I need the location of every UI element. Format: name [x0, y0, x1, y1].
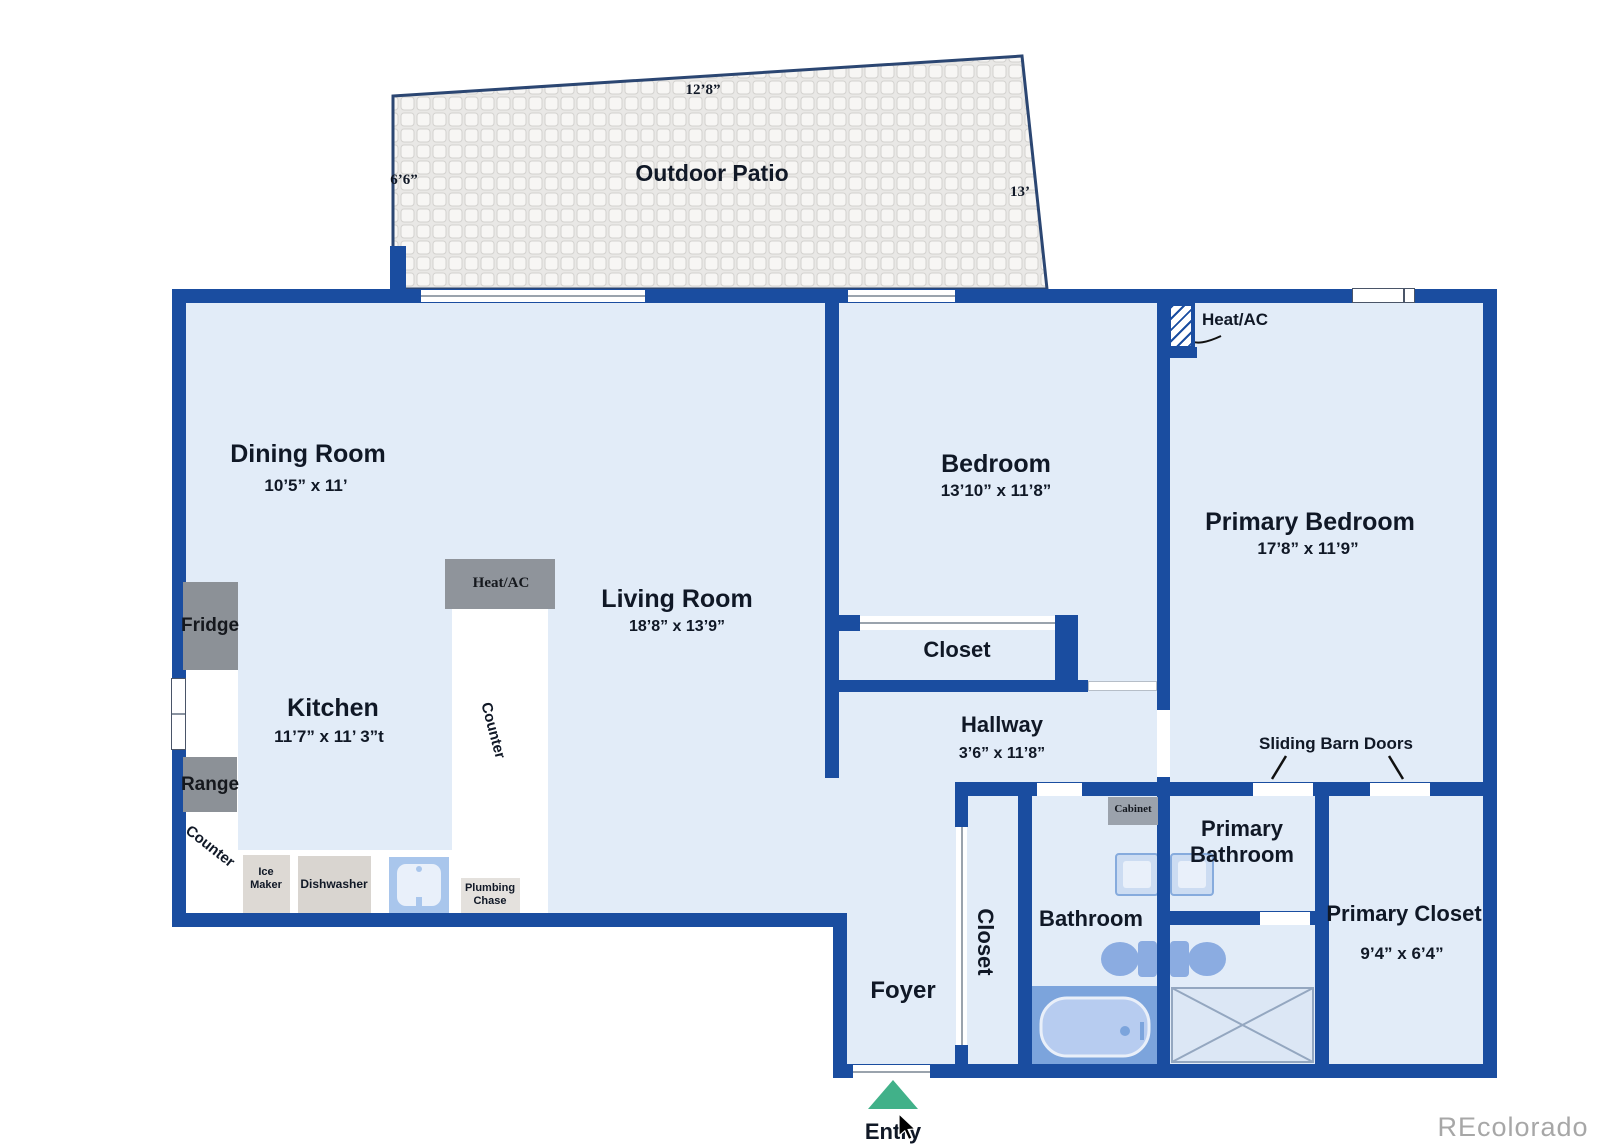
- dining-room-dims: 10’5” x 11’: [264, 476, 347, 496]
- range-label: Range: [181, 774, 239, 796]
- patio-dim-top: 12’8”: [686, 82, 721, 99]
- hallway-title: Hallway: [961, 712, 1043, 738]
- primary-bedroom-dims: 17’8” x 11’9”: [1257, 539, 1358, 559]
- ice-maker-label: IceMaker: [250, 866, 282, 892]
- plumbing-chase-label: PlumbingChase: [465, 882, 515, 908]
- wall-hallway-top: [839, 680, 1088, 692]
- heat-ac-unit: [1167, 302, 1195, 350]
- bedroom-dims: 13’10” x 11’8”: [941, 481, 1052, 501]
- barn-door-slash-left: [1272, 756, 1286, 779]
- wall-living-bedroom: [825, 289, 839, 778]
- foyer-title: Foyer: [870, 977, 935, 1005]
- bathroom-door: [1037, 783, 1082, 796]
- wall-foyer-left: [833, 913, 847, 1078]
- primary-bedroom-door: [1157, 710, 1170, 777]
- hallway-dims: 3’6” x 11’8”: [959, 745, 1045, 763]
- fixtures-layer: [0, 0, 1600, 1147]
- barn-door-slash-right: [1389, 756, 1403, 779]
- foyer-closet-title: Closet: [972, 908, 998, 975]
- living-room-dims: 18’8” x 13’9”: [629, 618, 725, 636]
- cabinet-label: Cabinet: [1114, 803, 1151, 816]
- patio-title: Outdoor Patio: [635, 160, 788, 187]
- primary-bathroom-title: PrimaryBathroom: [1190, 816, 1294, 868]
- patio-dim-right: 13’: [1010, 184, 1030, 201]
- entry-marker-icon: [868, 1080, 918, 1109]
- water-closet-door: [1260, 912, 1310, 925]
- bathroom-title: Bathroom: [1039, 906, 1143, 932]
- wall-closet-stub: [839, 615, 860, 631]
- primary-bedroom-title: Primary Bedroom: [1205, 508, 1415, 537]
- patio-door-bedroom: [848, 290, 955, 302]
- shower-x-icon: [1172, 988, 1313, 1062]
- wall-foyer-closet-right: [1018, 782, 1032, 1064]
- primary-closet-title: Primary Closet: [1326, 901, 1481, 927]
- bathtub-icon: [1032, 986, 1157, 1064]
- wall-bathrooms-shared: [1157, 782, 1170, 1064]
- heat-ac-bedroom-label: Heat/AC: [1202, 310, 1268, 330]
- foyer-closet-door: [956, 827, 967, 1045]
- wall-kitchen-bottom: [172, 913, 847, 927]
- bedroom-title: Bedroom: [941, 450, 1051, 479]
- bedroom-closet-title: Closet: [923, 637, 990, 663]
- wall-foyer-closet-stub-top: [955, 782, 968, 827]
- bathroom-sink-icon: [1116, 854, 1158, 895]
- entry-label: Entry: [865, 1119, 921, 1145]
- barn-door-opening-left: [1253, 783, 1313, 796]
- entry-door: [853, 1065, 930, 1078]
- heat-ac-kitchen-label: Heat/AC: [473, 575, 530, 592]
- primary-bedroom-window: [1352, 288, 1415, 303]
- kitchen-dims: 11’7” x 11’ 3”t: [274, 727, 384, 747]
- primary-closet-dims: 9’4” x 6’4”: [1360, 944, 1443, 964]
- living-room-title: Living Room: [601, 585, 752, 614]
- primary-toilet-icon: [1170, 941, 1226, 977]
- toilet-icon: [1101, 941, 1157, 977]
- floor-plan: 12’8” Outdoor Patio 6’6” 13’ Dining Room…: [0, 0, 1600, 1147]
- sliding-barn-doors-label: Sliding Barn Doors: [1259, 734, 1413, 754]
- kitchen-sink-icon: [389, 857, 449, 913]
- watermark: REcolorado: [1437, 1112, 1588, 1143]
- dishwasher-label: Dishwasher: [300, 877, 367, 891]
- dining-window: [171, 678, 186, 750]
- wall-right: [1483, 289, 1497, 1078]
- barn-door-opening-right: [1370, 783, 1430, 796]
- patio-sliding-door: [421, 290, 645, 302]
- bedroom-door: [1088, 681, 1157, 691]
- dining-room-title: Dining Room: [230, 440, 386, 469]
- patio-dim-left: 6’6”: [390, 172, 418, 189]
- kitchen-title: Kitchen: [287, 694, 379, 723]
- wall-bottom: [833, 1064, 1497, 1078]
- bedroom-closet-doors: [860, 616, 1055, 630]
- fridge-label: Fridge: [181, 615, 239, 637]
